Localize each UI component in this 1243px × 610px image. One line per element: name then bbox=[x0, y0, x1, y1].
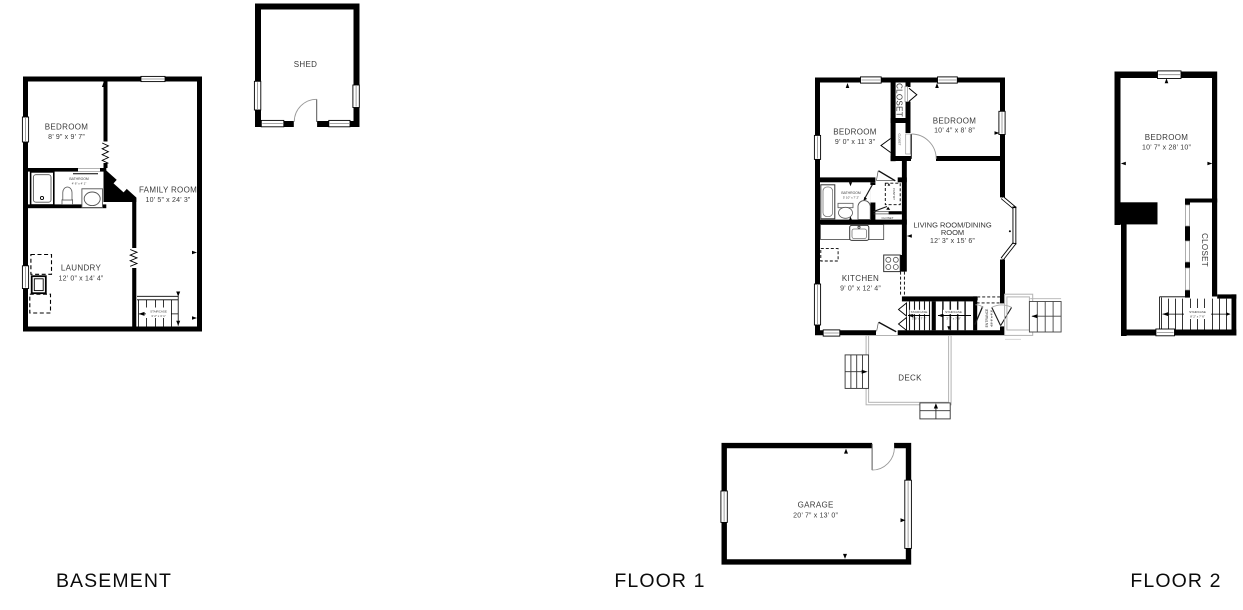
svg-text:12’ 0” x 14’ 4”: 12’ 0” x 14’ 4” bbox=[59, 276, 104, 283]
svg-text:BATHROOM: BATHROOM bbox=[841, 191, 861, 195]
svg-text:8’ 2” x 7’ 6”: 8’ 2” x 7’ 6” bbox=[1190, 315, 1205, 319]
svg-text:BASEMENT: BASEMENT bbox=[56, 570, 172, 592]
svg-text:3’ 2” x 7’ 8”: 3’ 2” x 7’ 8” bbox=[946, 317, 961, 321]
svg-text:KITCHEN: KITCHEN bbox=[842, 274, 879, 283]
svg-text:PANTRY: PANTRY bbox=[892, 188, 896, 200]
svg-text:4’ 6” x 4’ 1”: 4’ 6” x 4’ 1” bbox=[72, 182, 87, 186]
svg-text:3’ 2” x 3’ 1”: 3’ 2” x 3’ 1” bbox=[151, 314, 166, 318]
svg-text:3’ 6” x 7’ 5”: 3’ 6” x 7’ 5” bbox=[912, 317, 927, 321]
svg-text:GARAGE: GARAGE bbox=[798, 501, 834, 510]
svg-text:DECK: DECK bbox=[898, 374, 922, 383]
svg-text:FAMILY ROOM: FAMILY ROOM bbox=[139, 186, 197, 195]
svg-text:FLOOR 2: FLOOR 2 bbox=[1130, 570, 1221, 592]
svg-text:BATHROOM: BATHROOM bbox=[69, 177, 89, 181]
svg-text:9’ 0” x 11’ 3”: 9’ 0” x 11’ 3” bbox=[835, 139, 876, 146]
svg-text:STAIRCASE: STAIRCASE bbox=[1189, 310, 1206, 314]
svg-text:FLOOR 1: FLOOR 1 bbox=[614, 570, 705, 592]
svg-text:BEDROOM: BEDROOM bbox=[933, 117, 976, 126]
svg-text:BEDROOM: BEDROOM bbox=[45, 123, 88, 132]
svg-text:ENTRANCE: ENTRANCE bbox=[985, 308, 989, 327]
svg-text:CLOSET: CLOSET bbox=[1200, 233, 1209, 267]
svg-text:CLOSET: CLOSET bbox=[895, 83, 904, 117]
svg-text:STAIRCASE: STAIRCASE bbox=[150, 310, 167, 314]
svg-text:LAUNDRY: LAUNDRY bbox=[61, 264, 102, 273]
svg-text:9’ 0” x 12’ 4”: 9’ 0” x 12’ 4” bbox=[840, 286, 881, 293]
svg-text:CLOSET: CLOSET bbox=[881, 216, 893, 220]
svg-text:BEDROOM: BEDROOM bbox=[1145, 133, 1188, 142]
svg-text:BEDROOM: BEDROOM bbox=[833, 128, 876, 137]
svg-text:STAIRCASE: STAIRCASE bbox=[911, 310, 928, 314]
svg-text:10’ 5” x 24’ 3”: 10’ 5” x 24’ 3” bbox=[146, 197, 191, 204]
svg-text:10’ 7” x 28’ 10”: 10’ 7” x 28’ 10” bbox=[1142, 145, 1191, 152]
svg-text:STAIRCASE: STAIRCASE bbox=[945, 310, 962, 314]
svg-text:SHED: SHED bbox=[294, 60, 317, 69]
svg-text:10’ 4” x 8’ 8”: 10’ 4” x 8’ 8” bbox=[934, 128, 975, 135]
svg-text:ROOM: ROOM bbox=[941, 228, 964, 237]
svg-text:20’ 7” x 13’ 0”: 20’ 7” x 13’ 0” bbox=[793, 513, 838, 520]
svg-text:5’ 10” x 7’ 2”: 5’ 10” x 7’ 2” bbox=[843, 196, 859, 200]
svg-text:CLOSET: CLOSET bbox=[898, 133, 902, 145]
svg-text:12’ 3” x 15’ 6”: 12’ 3” x 15’ 6” bbox=[930, 238, 975, 245]
svg-text:8’ 9” x 9’ 7”: 8’ 9” x 9’ 7” bbox=[48, 134, 85, 141]
